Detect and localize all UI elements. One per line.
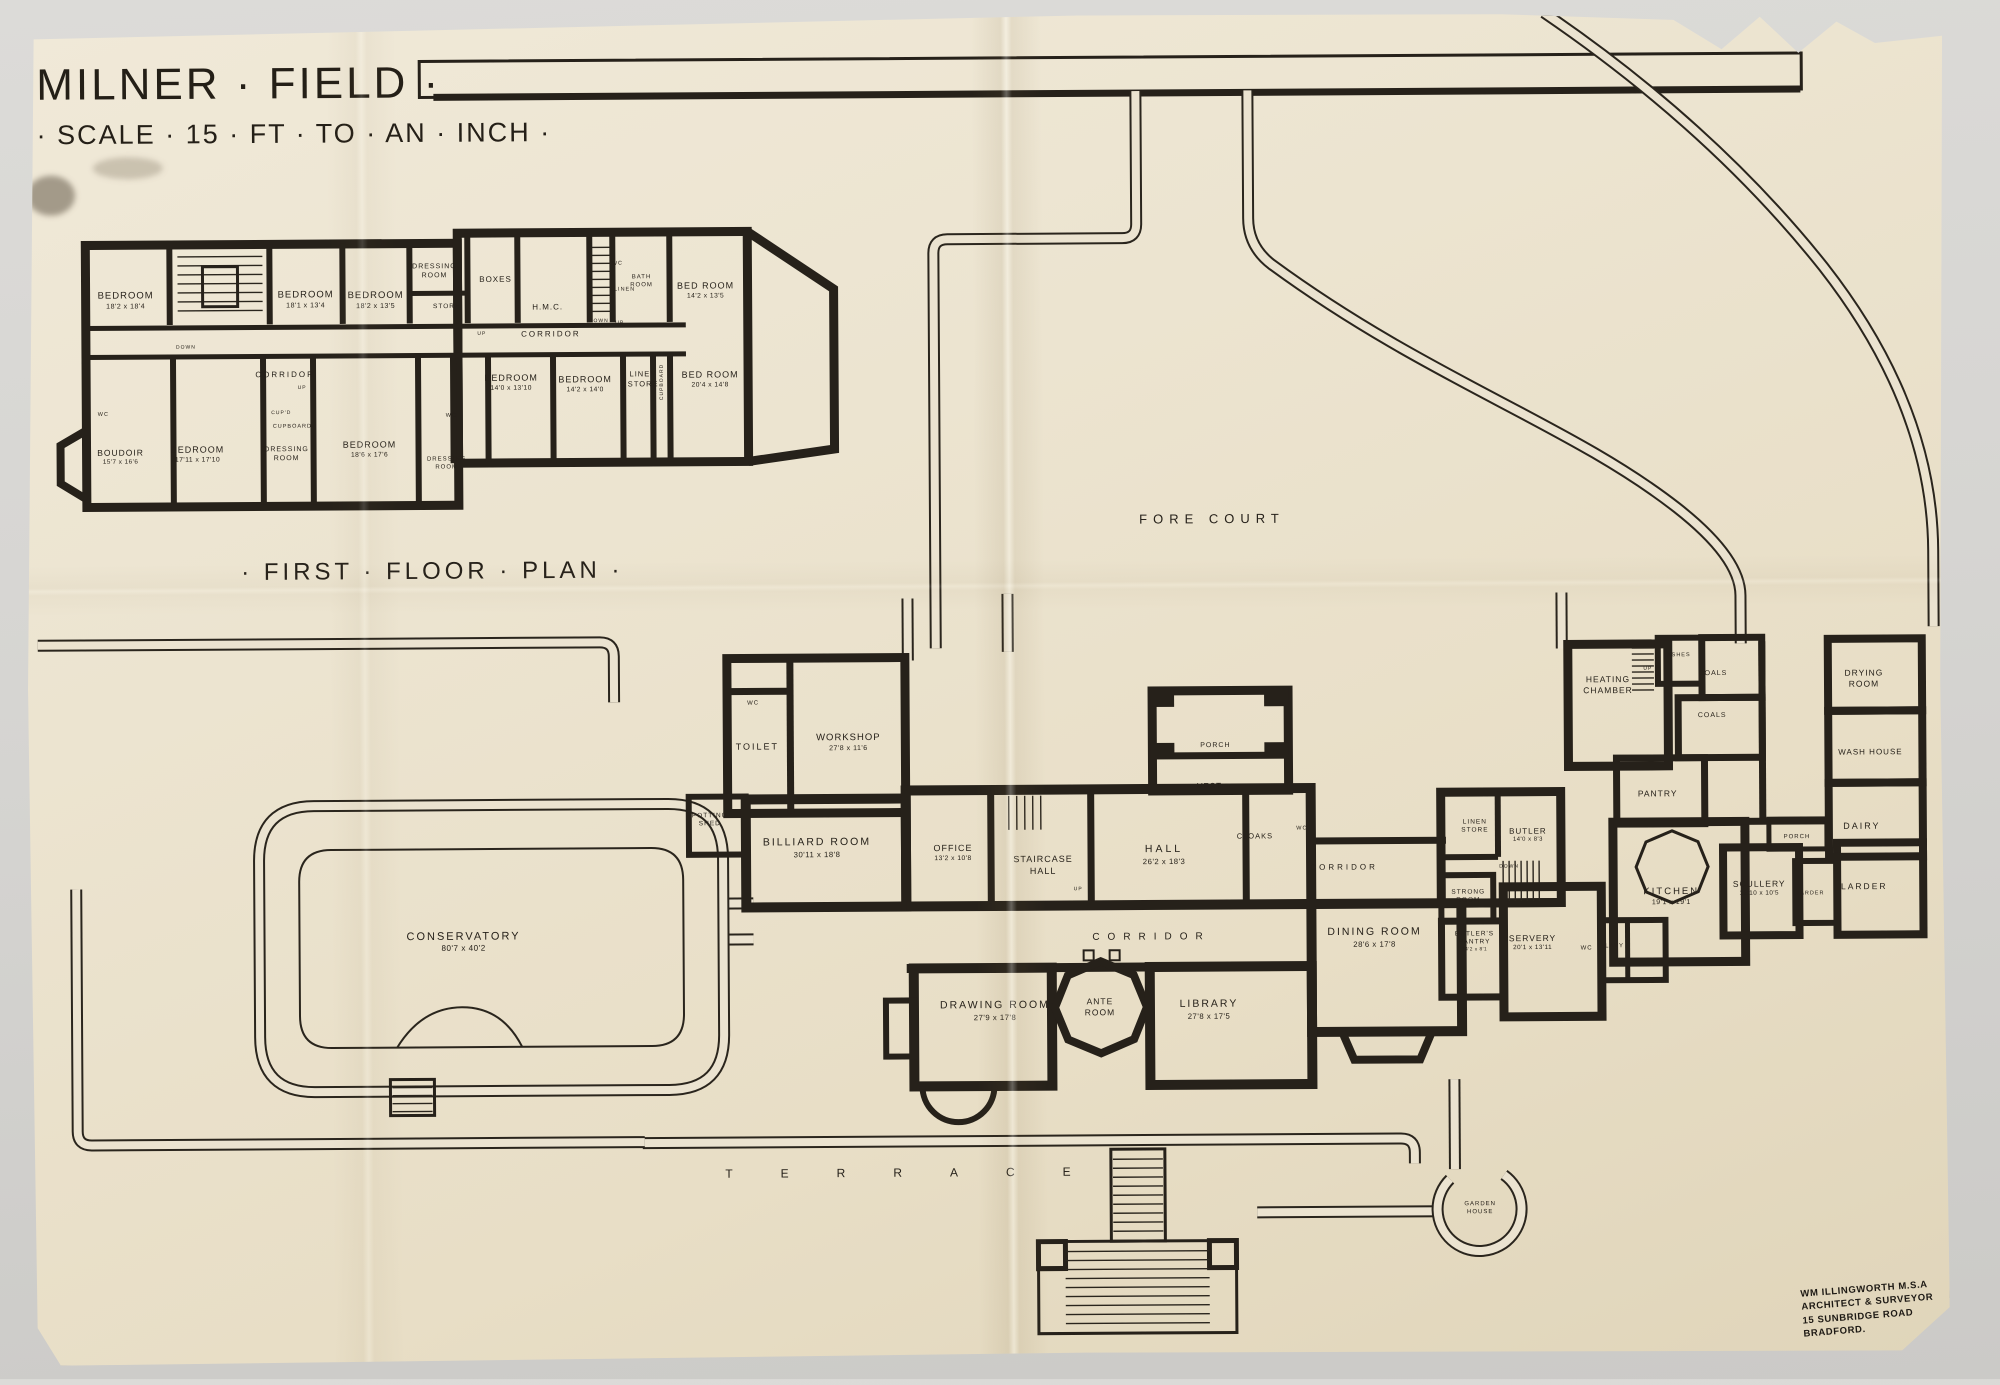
room-label-terrace: TERRACE bbox=[677, 1164, 1118, 1182]
room-label-gf-wc-3: WC bbox=[1581, 945, 1593, 953]
room-label-ff-hmc: H.M.C. bbox=[532, 302, 563, 313]
room-label-gf-conservatory: CONSERVATORY80'7 x 40'2 bbox=[406, 929, 520, 955]
room-label-ff-bedroom-8: BEDROOM17'11 x 17'10 bbox=[171, 444, 225, 465]
room-label-ff-up-2: UP bbox=[477, 331, 486, 338]
room-label-ff-up-1: UP bbox=[298, 385, 307, 392]
conservatory-walls bbox=[259, 804, 725, 1117]
room-label-gf-wc-2: WC bbox=[1296, 825, 1307, 832]
room-label-ff-boudoir: BOUDOIR15'7 x 16'6 bbox=[97, 448, 144, 468]
room-label-ff-dressing-room-1: DRESSINGROOM bbox=[412, 262, 457, 280]
room-label-ff-linen-store: LINENSTORE bbox=[628, 369, 659, 389]
room-label-ff-bedroom-4: BED ROOM14'2 x 13'5 bbox=[677, 280, 734, 301]
room-label-gf-corridor-right: CORRIDOR bbox=[1310, 862, 1378, 873]
room-label-ff-down-1: DOWN bbox=[176, 345, 196, 352]
room-label-gf-pantry: PANTRY bbox=[1638, 788, 1678, 799]
room-label-gf-corridor-main: CORRIDOR bbox=[1084, 930, 1211, 944]
room-label-ff-corridor-right: CORRIDOR bbox=[521, 329, 581, 340]
room-label-gf-heating-chamber: HEATINGCHAMBER bbox=[1583, 674, 1633, 696]
room-label-gf-dining-room: DINING ROOM28'6 x 17'8 bbox=[1327, 925, 1421, 949]
room-label-gf-up-1: UP bbox=[1074, 886, 1083, 893]
room-label-gf-coals-2: COALS bbox=[1698, 711, 1727, 720]
room-label-ff-bedroom-6: BEDROOM14'2 x 14'0 bbox=[558, 374, 612, 395]
room-label-ff-cupboard-h: CUPBOARD bbox=[273, 424, 312, 431]
room-label-ff-store: STORE bbox=[433, 303, 460, 312]
room-label-gf-up-2: UP bbox=[1643, 666, 1652, 673]
room-label-ff-dressing-room-3: DRESSINGROOM bbox=[427, 456, 466, 472]
architect-stamp: WM ILLINGWORTH M.S.AARCHITECT & SURVEYOR… bbox=[1800, 1278, 1936, 1341]
room-label-gf-coals-1: COALS bbox=[1699, 669, 1728, 678]
room-label-ff-down-2: DOWN bbox=[589, 318, 609, 325]
room-label-gf-porch-main: PORCH bbox=[1200, 741, 1230, 750]
room-label-ff-bedroom-7: BED ROOM20'4 x 14'8 bbox=[682, 369, 739, 390]
room-label-gf-down-1: DOWN bbox=[1499, 864, 1519, 871]
room-label-ff-bedroom-2: BEDROOM18'1 x 13'4 bbox=[278, 289, 334, 311]
photo-of-plan: MILNER · FIELD · · SCALE · 15 · FT · TO … bbox=[0, 0, 2000, 1379]
room-label-gf-library: LIBRARY27'8 x 17'5 bbox=[1180, 998, 1239, 1022]
room-label-ff-cupboard-v: CUPBOARD bbox=[659, 364, 666, 400]
room-label-gf-drawing-room: DRAWING ROOM27'9 x 17'8 bbox=[940, 999, 1050, 1023]
room-label-gf-scullery: SCULLERY12'10 x 10'5 bbox=[1733, 879, 1786, 899]
room-label-gf-dairy: DAIRY bbox=[1843, 821, 1880, 833]
room-label-gf-drying-room: DRYINGROOM bbox=[1844, 667, 1883, 689]
room-label-gf-staircase-hall: STAIRCASEHALL bbox=[1013, 854, 1072, 878]
room-label-gf-porch-service: PORCH bbox=[1784, 834, 1811, 842]
plan-sheet: MILNER · FIELD · · SCALE · 15 · FT · TO … bbox=[24, 6, 1950, 1366]
room-label-ff-wc-1: WC bbox=[612, 261, 623, 268]
room-label-ff-cupd: CUP'D bbox=[271, 410, 291, 417]
room-label-ff-corridor-left: CORRIDOR bbox=[255, 370, 315, 381]
room-label-ff-linen: LINEN bbox=[614, 287, 635, 294]
room-label-ff-bedroom-5: BEDROOM14'0 x 13'10 bbox=[484, 373, 538, 394]
room-label-ff-bedroom-9: BEDROOM18'6 x 17'6 bbox=[343, 439, 397, 460]
label-layer: MILNER · FIELD · · SCALE · 15 · FT · TO … bbox=[0, 0, 1996, 6]
room-label-gf-strong-room: STRONGROOM bbox=[1451, 889, 1485, 906]
room-label-ff-bedroom-3: BEDROOM18'2 x 13'5 bbox=[348, 290, 404, 312]
room-label-gf-office: OFFICE13'2 x 10'8 bbox=[933, 843, 972, 864]
room-label-gf-linen-store: LINENSTORE bbox=[1461, 819, 1488, 836]
room-label-gf-vest: VEST bbox=[1197, 781, 1222, 792]
room-label-gf-ante-room: ANTEROOM bbox=[1085, 996, 1116, 1018]
room-label-gf-toilet: TOILET bbox=[736, 741, 779, 753]
room-label-ff-caption: · FIRST · FLOOR · PLAN · bbox=[241, 555, 623, 589]
room-label-gf-larder-small: LARDER bbox=[1796, 890, 1824, 897]
ink-smudge bbox=[27, 176, 75, 216]
room-label-gf-hall: HALL26'2 x 18'3 bbox=[1143, 843, 1186, 867]
room-label-gf-butler: BUTLER14'0 x 8'3 bbox=[1509, 827, 1547, 845]
room-label-gf-wash-house: WASH HOUSE bbox=[1838, 747, 1902, 758]
room-label-garden-house: GARDENHOUSE bbox=[1464, 1201, 1496, 1217]
room-label-gf-ashes: ASHES bbox=[1667, 652, 1691, 659]
sheet-title: MILNER · FIELD · bbox=[36, 58, 441, 110]
room-label-gf-wc-1: WC bbox=[747, 700, 759, 708]
room-label-gf-potting-shed: POTTINGSHED bbox=[692, 812, 728, 829]
room-label-gf-lavy: LAVY bbox=[1605, 943, 1624, 951]
room-label-gf-servery: SERVERY20'1 x 13'11 bbox=[1509, 933, 1556, 953]
room-label-ff-up-3: UP bbox=[615, 320, 624, 327]
room-label-ff-wc-2: WC bbox=[98, 412, 109, 419]
room-label-gf-workshop: WORKSHOP27'8 x 11'6 bbox=[816, 732, 881, 754]
room-label-gf-billiard-room: BILLIARD ROOM30'11 x 18'8 bbox=[763, 836, 871, 860]
title-bar bbox=[419, 53, 1801, 97]
room-label-ff-bedroom-1: BEDROOM18'2 x 18'4 bbox=[98, 290, 154, 312]
sheet-scale: · SCALE · 15 · FT · TO · AN · INCH · bbox=[37, 117, 552, 151]
room-label-gf-kitchen: KITCHEN19'1 x 19'1 bbox=[1643, 886, 1699, 908]
room-label-ff-dressing-room-2: DRESSINGROOM bbox=[264, 445, 309, 463]
room-label-gf-cloaks: CLOAKS bbox=[1237, 831, 1273, 841]
room-label-gf-larder-large: LARDER bbox=[1841, 881, 1888, 892]
room-label-gf-butlers-pantry: BUTLER'SPANTRY14'2 x 8'1 bbox=[1455, 930, 1494, 953]
room-label-ff-boxes: BOXES bbox=[479, 275, 512, 286]
site-lines bbox=[34, 10, 1937, 1220]
room-label-fore-court: FORE COURT bbox=[1139, 511, 1285, 529]
room-label-ff-wc-3: WC bbox=[446, 413, 457, 420]
